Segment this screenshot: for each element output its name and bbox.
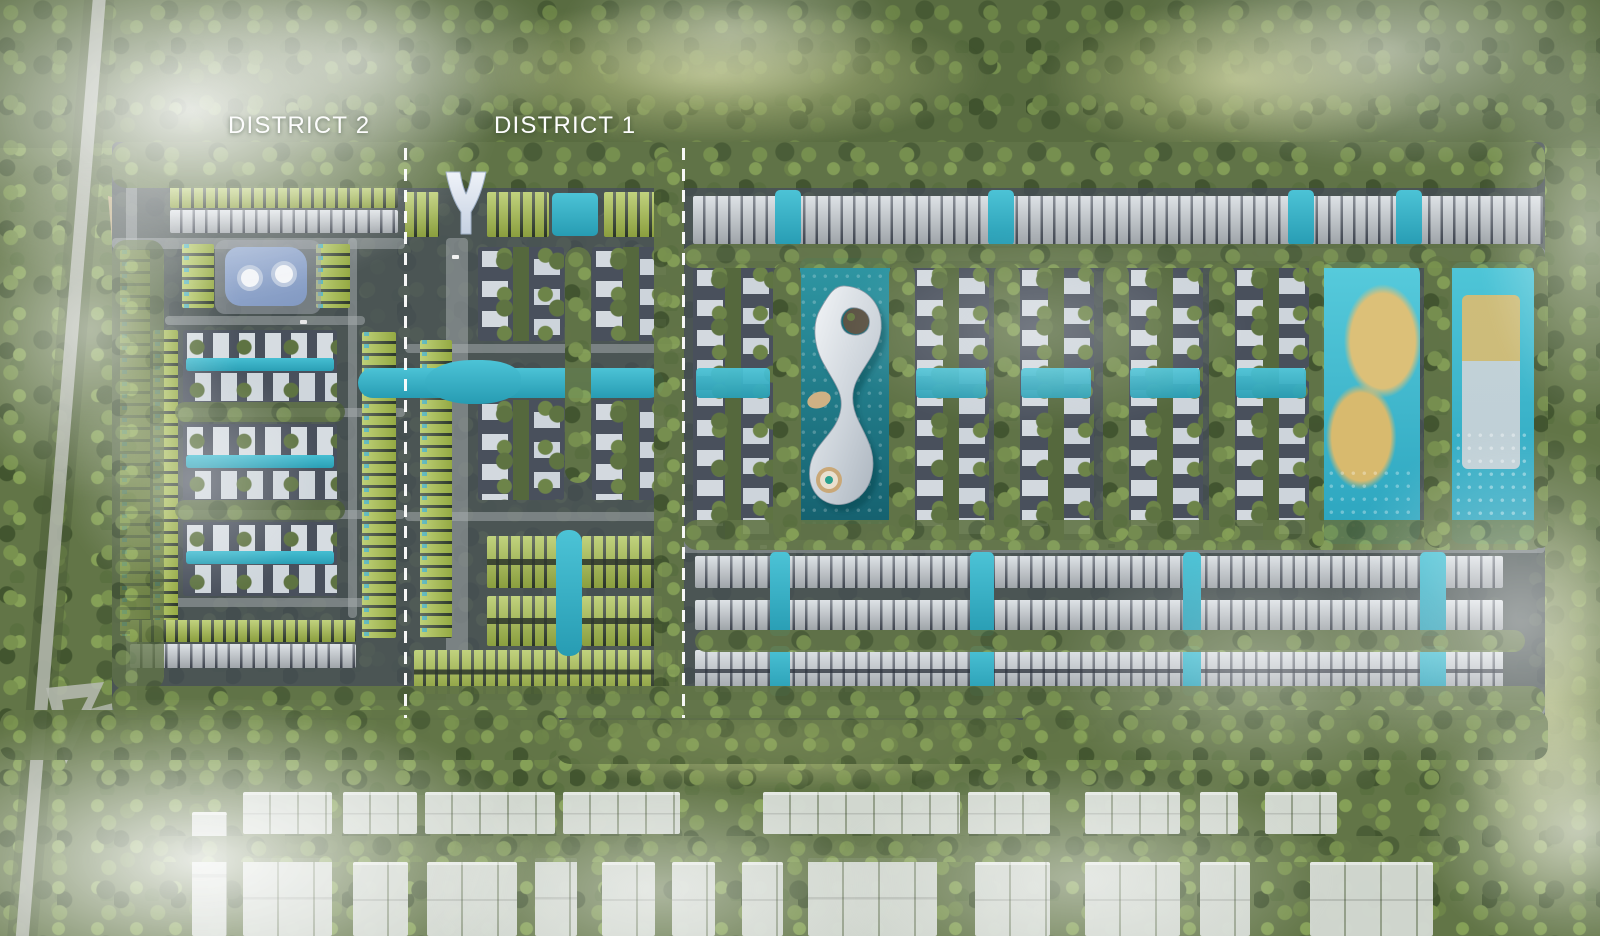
masterplan-scene: DISTRICT 2 DISTRICT 1 xyxy=(0,0,1600,936)
landmark-buildings xyxy=(0,0,1600,936)
district-divider-line xyxy=(404,148,407,718)
sculpture-pavilion xyxy=(805,286,886,512)
district-1-label: DISTRICT 1 xyxy=(494,112,636,140)
district-divider-line xyxy=(682,148,685,718)
district-2-label: DISTRICT 2 xyxy=(228,112,370,140)
y-gate-pavilion xyxy=(446,172,486,234)
